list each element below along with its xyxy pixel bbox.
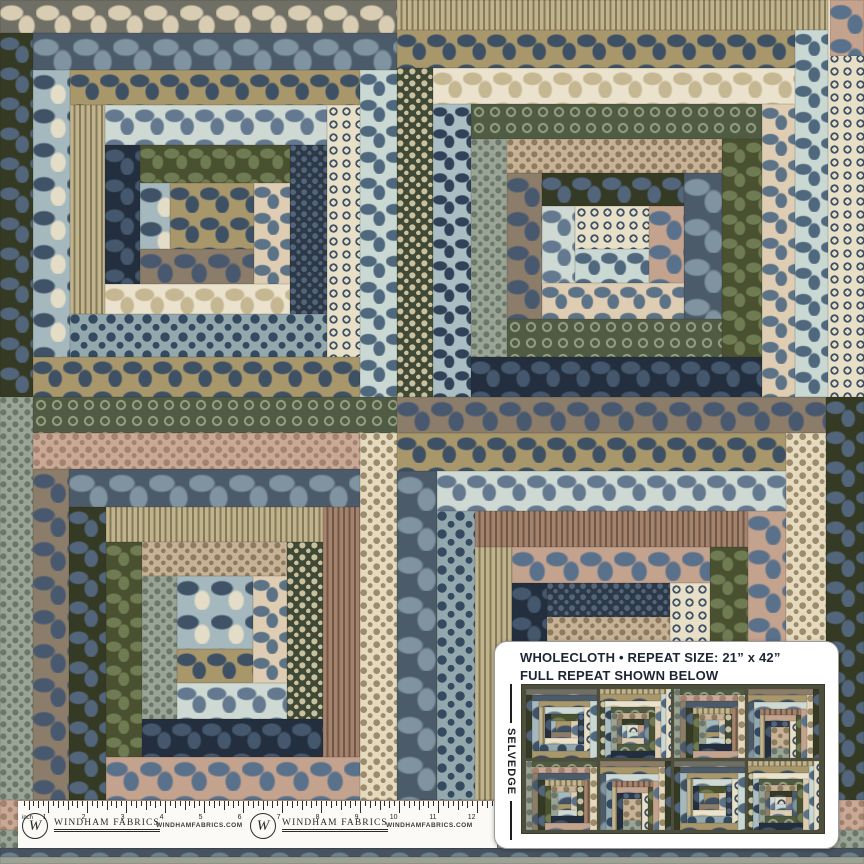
fabric-log <box>471 357 762 397</box>
ruler-tick <box>414 801 415 806</box>
thumbnail-mini-block <box>748 689 819 758</box>
selvedge-label: SELVEDGE <box>502 684 520 840</box>
mini-log <box>726 786 733 815</box>
mini-log <box>686 701 738 708</box>
mini-log <box>655 707 660 758</box>
mini-log <box>558 810 578 816</box>
mini-log <box>551 816 583 823</box>
fabric-log <box>542 283 684 319</box>
mini-log <box>584 780 591 823</box>
windham-url-text: WINDHAMFABRICS.COM <box>386 822 473 829</box>
fabric-log <box>33 33 397 70</box>
mini-log <box>551 714 578 721</box>
ruler-tick <box>43 801 44 806</box>
mini-log <box>748 766 809 773</box>
fabric-log <box>33 70 70 357</box>
mini-log <box>803 779 808 830</box>
mini-log <box>545 738 578 743</box>
fabric-log <box>140 249 254 284</box>
ruler-tick <box>97 801 98 808</box>
mini-log <box>706 732 720 738</box>
fabric-log <box>105 284 290 314</box>
mini-log <box>699 786 726 793</box>
ruler-tick <box>194 801 195 808</box>
windham-monogram-logo: W <box>250 813 276 839</box>
ruler-tick <box>72 801 73 806</box>
fabric-log <box>0 397 33 800</box>
fabric-log <box>795 30 828 397</box>
ruler-tick <box>267 801 268 806</box>
ruler-tick <box>189 801 190 806</box>
ruler-tick <box>185 801 186 810</box>
mini-log <box>693 751 738 758</box>
mini-log <box>627 725 638 732</box>
mini-log <box>790 721 796 758</box>
fabric-log <box>323 507 360 757</box>
fabric-log <box>170 183 254 249</box>
mini-log <box>600 694 661 701</box>
mini-log <box>738 773 745 830</box>
mini-log <box>558 792 572 804</box>
fabric-log <box>70 314 327 357</box>
ruler-tick <box>482 801 483 806</box>
ruler-tick <box>155 801 156 808</box>
ruler-tick <box>277 801 278 806</box>
mini-log <box>807 695 813 758</box>
ruler-tick <box>121 801 122 806</box>
mini-log <box>775 804 786 810</box>
thumbnail-mini-block <box>526 761 597 830</box>
mini-log <box>590 701 597 758</box>
mini-log <box>622 738 644 744</box>
ruler-tick <box>33 801 34 806</box>
mini-log <box>623 799 642 820</box>
fabric-log <box>433 68 795 104</box>
selvedge-text: SELVEDGE <box>505 728 517 795</box>
ruler-tick <box>248 801 249 806</box>
fabric-log <box>433 104 471 397</box>
mini-log <box>551 732 571 738</box>
ruler-tick <box>458 801 459 810</box>
ruler-tick <box>394 801 395 806</box>
mini-log <box>584 707 590 751</box>
ruler-tick <box>160 801 161 806</box>
ruler-tick <box>116 801 117 808</box>
fabric-log <box>177 649 253 683</box>
mini-log <box>699 804 719 810</box>
selvedge-rule-top <box>510 684 512 723</box>
ruler-tick <box>82 801 83 806</box>
ruler-tick <box>224 801 225 810</box>
fabric-log <box>722 139 762 357</box>
fabric-log <box>762 104 795 397</box>
ruler-tick <box>238 801 239 806</box>
ruler-tick <box>326 801 327 806</box>
mini-log <box>538 780 545 830</box>
fabric-product-image: inch 123456789101112WWINDHAM FABRICSWIND… <box>0 0 864 864</box>
fabric-log <box>0 0 397 33</box>
fabric-log <box>575 206 649 249</box>
mini-log <box>693 810 726 815</box>
mini-log <box>627 732 638 738</box>
ruler-tick <box>472 801 473 806</box>
fabric-log <box>0 33 33 397</box>
ruler-tick <box>404 801 405 806</box>
mini-log <box>539 744 585 751</box>
mini-log <box>556 721 571 732</box>
mini-log <box>719 793 725 811</box>
ruler-tick <box>423 801 424 806</box>
ruler-tick <box>370 801 371 808</box>
fabric-log <box>70 105 105 314</box>
fabric-log <box>471 104 762 139</box>
fabric-log <box>397 30 795 68</box>
ruler-tick <box>53 801 54 806</box>
ruler-tick <box>253 801 254 808</box>
fabric-log <box>397 0 828 30</box>
ruler-tick <box>331 801 332 808</box>
fabric-log <box>547 583 670 617</box>
ruler-tick <box>302 801 303 810</box>
mini-log <box>725 714 731 744</box>
ruler-tick <box>170 801 171 806</box>
ruler-tick <box>219 801 220 806</box>
mini-log <box>732 779 738 823</box>
mini-log <box>638 725 643 738</box>
mini-log <box>765 816 798 823</box>
mini-log <box>797 785 803 823</box>
ruler-tick <box>467 801 468 808</box>
thumbnail-mini-block <box>674 761 745 830</box>
ruler-tick <box>355 801 356 806</box>
mini-log <box>577 786 583 816</box>
mini-log <box>642 793 648 830</box>
ruler-tick <box>77 801 78 808</box>
ruler-tick <box>111 801 112 806</box>
fabric-log <box>33 433 360 469</box>
ruler-tick <box>68 801 69 810</box>
ruler-tick <box>214 801 215 808</box>
fabric-log <box>142 576 177 719</box>
fabric-log <box>253 576 287 683</box>
mini-log <box>648 787 654 830</box>
fabric-log <box>475 511 748 547</box>
fabric-log <box>290 145 327 314</box>
ruler-tick <box>258 801 259 806</box>
repeat-thumbnail <box>521 684 825 834</box>
fabric-log <box>397 471 437 800</box>
ruler-tick <box>131 801 132 806</box>
mini-log <box>796 715 802 758</box>
fabric-log <box>33 397 397 433</box>
fabric-edge-strip <box>0 857 864 864</box>
mini-log <box>578 714 585 743</box>
mini-log <box>571 792 577 810</box>
mini-log <box>771 727 790 748</box>
ruler-tick <box>311 801 312 808</box>
fabric-log <box>437 511 475 800</box>
mini-log <box>719 720 725 738</box>
mini-log <box>732 708 739 751</box>
ruler-tick <box>462 801 463 806</box>
mini-log <box>754 702 807 709</box>
fabric-log <box>142 542 287 576</box>
ruler: inch 123456789101112WWINDHAM FABRICSWIND… <box>18 801 497 848</box>
ruler-tick <box>443 801 444 806</box>
repeat-size-text: WHOLECLOTH • REPEAT SIZE: 21” x 42” <box>520 650 781 665</box>
info-card: WHOLECLOTH • REPEAT SIZE: 21” x 42” FULL… <box>494 641 839 849</box>
thumbnail-mini-block <box>600 689 671 758</box>
ruler-tick <box>136 801 137 808</box>
ruler-tick <box>409 801 410 808</box>
fabric-log <box>507 139 722 173</box>
fabric-log <box>106 507 323 542</box>
fabric-log <box>507 319 722 357</box>
ruler-tick <box>297 801 298 806</box>
selvedge-rule-bottom <box>510 801 512 840</box>
mini-log <box>786 797 791 810</box>
fabric-log <box>33 357 360 397</box>
ruler-tick <box>175 801 176 808</box>
ruler-tick <box>29 801 30 810</box>
ruler-tick <box>58 801 59 808</box>
ruler-tick <box>107 801 108 810</box>
ruler-tick <box>341 801 342 810</box>
fabric-log <box>69 507 106 800</box>
ruler-tick <box>63 801 64 806</box>
ruler-tick <box>233 801 234 808</box>
fabric-log <box>105 105 327 145</box>
thumbnail-mini-block <box>674 689 745 758</box>
mini-log <box>558 804 572 810</box>
mini-log <box>771 748 790 758</box>
fabric-log <box>69 469 360 507</box>
fabric-log <box>287 542 323 719</box>
mini-log <box>611 751 655 758</box>
ruler-tick <box>272 801 273 808</box>
mini-log <box>792 791 798 816</box>
ruler-tick <box>365 801 366 806</box>
fabric-log <box>360 433 397 800</box>
mini-log <box>775 797 786 804</box>
ruler-tick <box>336 801 337 806</box>
ruler-tick <box>384 801 385 806</box>
ruler-tick <box>141 801 142 806</box>
fabric-log <box>106 757 360 800</box>
fabric-log <box>575 249 649 283</box>
fabric-log <box>397 433 786 471</box>
mini-log <box>538 773 590 780</box>
thumbnail-mini-block <box>748 761 819 830</box>
ruler-tick <box>487 801 488 808</box>
mini-log <box>644 719 650 744</box>
fabric-log <box>177 576 253 649</box>
mini-log <box>693 779 733 786</box>
fabric-log <box>106 542 142 757</box>
thumbnail-mini-block <box>600 761 671 830</box>
ruler-tick <box>209 801 210 806</box>
mini-log <box>649 713 655 751</box>
mini-log <box>617 744 650 751</box>
ruler-tick <box>350 801 351 808</box>
mini-log <box>814 761 819 830</box>
fabric-log <box>649 206 684 283</box>
fabric-log <box>397 397 826 433</box>
mini-log <box>665 761 671 830</box>
ruler-tick <box>180 801 181 806</box>
fabric-log <box>177 683 287 719</box>
mini-log <box>813 689 819 758</box>
ruler-tick <box>38 801 39 808</box>
mini-log <box>666 689 671 758</box>
ruler-tick <box>150 801 151 806</box>
mini-log <box>532 701 539 751</box>
ruler-tick <box>345 801 346 806</box>
ruler-tick <box>287 801 288 806</box>
fabric-log <box>512 547 710 583</box>
mini-log <box>606 774 659 781</box>
fabric-log <box>507 173 542 319</box>
mini-log <box>571 721 577 739</box>
ruler-tick <box>389 801 390 808</box>
ruler-tick <box>24 801 25 806</box>
fabric-log <box>437 471 786 511</box>
ruler-tick <box>492 801 493 806</box>
mini-log <box>659 767 665 830</box>
mini-log <box>623 820 642 830</box>
mini-log <box>545 707 585 714</box>
fabric-log <box>327 105 360 357</box>
mini-log <box>759 823 803 830</box>
fabric-log <box>142 719 323 757</box>
mini-log <box>706 738 726 744</box>
ruler-tick <box>380 801 381 810</box>
mini-log <box>661 694 666 758</box>
ruler-tick <box>453 801 454 806</box>
mini-log <box>653 781 659 830</box>
mini-log <box>532 751 590 758</box>
ruler-tick <box>228 801 229 806</box>
ruler-tick <box>199 801 200 806</box>
ruler-tick <box>306 801 307 806</box>
mini-log <box>706 720 720 732</box>
windham-wordmark: WINDHAM FABRICS <box>282 818 388 832</box>
ruler-tick <box>419 801 420 810</box>
mini-log <box>680 773 687 823</box>
fabric-log <box>70 70 360 105</box>
mini-log <box>686 708 693 758</box>
mini-log <box>770 810 792 816</box>
ruler-tick <box>292 801 293 808</box>
fabric-log <box>140 145 290 183</box>
fabric-log <box>471 139 507 357</box>
full-repeat-text: FULL REPEAT SHOWN BELOW <box>520 668 718 683</box>
fabric-log <box>105 145 140 284</box>
ruler-tick <box>448 801 449 808</box>
fabric-log <box>542 206 575 283</box>
fabric-log <box>684 173 722 319</box>
ruler-tick <box>263 801 264 810</box>
fabric-log <box>360 70 397 397</box>
fabric-log <box>254 183 290 284</box>
thumbnail-mini-block <box>526 689 597 758</box>
mini-log <box>801 709 807 758</box>
windham-brand-group: WWINDHAM FABRICSWINDHAMFABRICS.COM <box>18 812 497 842</box>
fabric-edge-strip <box>0 848 864 857</box>
mini-log <box>738 695 745 758</box>
ruler-tick <box>92 801 93 806</box>
mini-log <box>704 793 719 804</box>
mini-log <box>680 823 738 830</box>
mini-log <box>590 767 597 830</box>
ruler-tick <box>428 801 429 808</box>
fabric-log <box>397 68 433 397</box>
mini-log <box>545 823 590 830</box>
fabric-log <box>33 469 69 800</box>
fabric-log <box>140 183 170 249</box>
ruler-tick <box>146 801 147 810</box>
ruler-tick <box>102 801 103 806</box>
ruler-tick <box>433 801 434 806</box>
fabric-log <box>542 173 684 206</box>
ruler-tick <box>316 801 317 806</box>
fabric-log <box>828 0 864 397</box>
fabric-edge-strip <box>830 0 864 56</box>
mini-log <box>699 744 731 751</box>
mini-log <box>809 766 814 830</box>
ruler-tick <box>375 801 376 806</box>
mini-log <box>687 816 733 823</box>
